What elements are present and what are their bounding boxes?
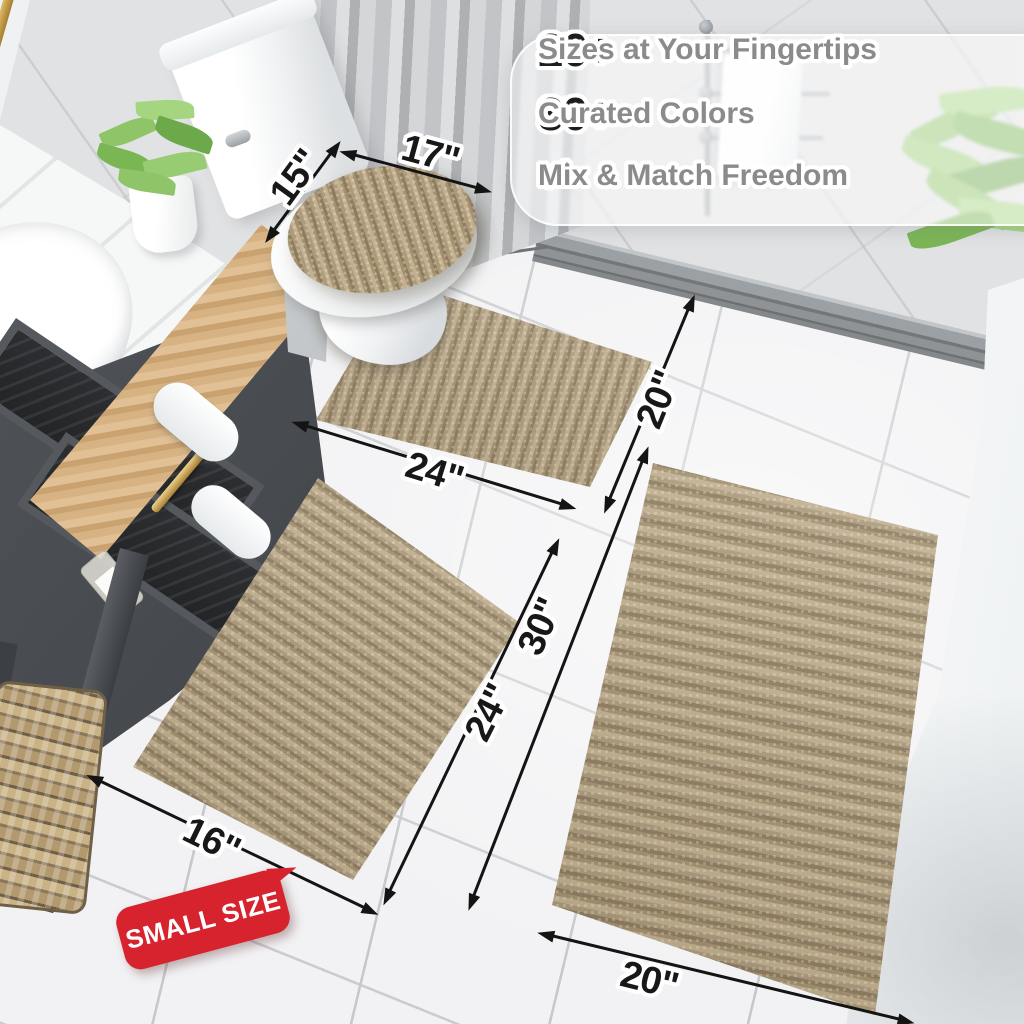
feature-label: Curated Colors <box>538 99 755 129</box>
plant-counter <box>92 88 232 208</box>
leaf <box>152 115 216 154</box>
feature-panel: ✓ 20+ Sizes at Your Fingertips ✓ 30+ Cur… <box>510 34 1024 226</box>
product-image: 15" 17" 24" 20" 24" 30" 16" 20" ✓ 20+ Si… <box>0 0 1024 1024</box>
feature-label: Mix & Match Freedom <box>538 161 848 191</box>
feature-label: Sizes at Your Fingertips <box>538 35 877 65</box>
rail-knob <box>699 20 713 34</box>
